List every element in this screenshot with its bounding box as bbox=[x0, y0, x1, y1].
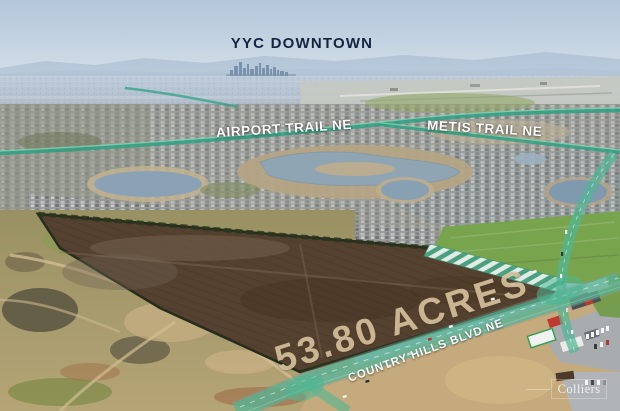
colliers-watermark-text: Colliers bbox=[558, 382, 601, 397]
colliers-watermark: Colliers bbox=[551, 379, 607, 399]
downtown-label: YYC DOWNTOWN bbox=[222, 35, 382, 52]
aerial-photo: YYC DOWNTOWN AIRPORT TRAIL NE METIS TRAI… bbox=[0, 0, 620, 411]
